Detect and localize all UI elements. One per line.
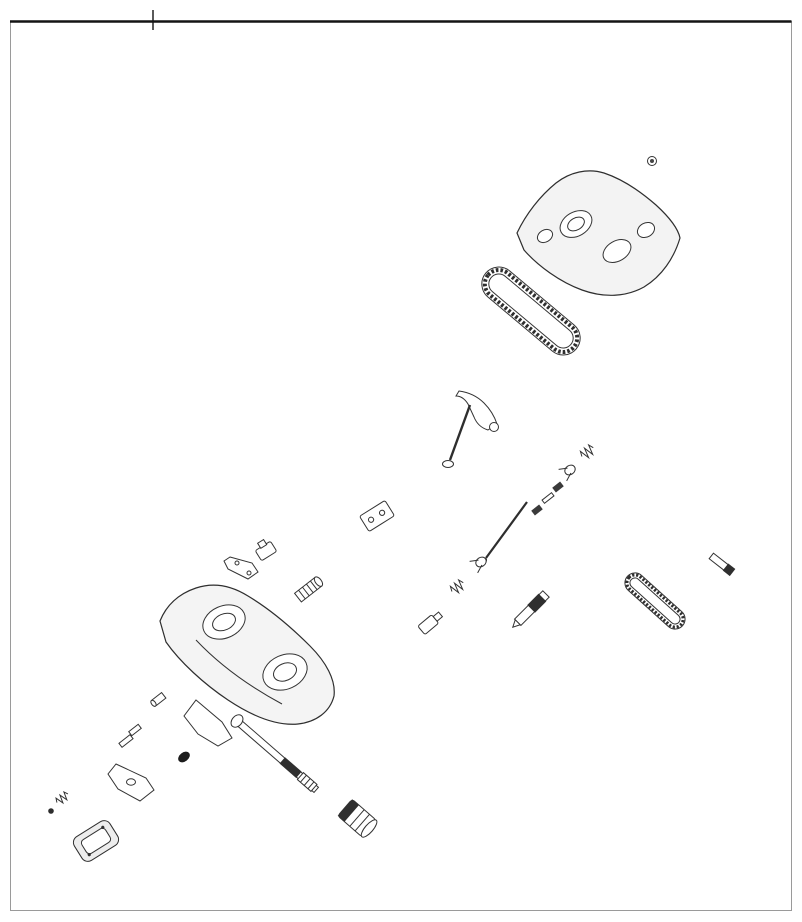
cap-art	[176, 749, 192, 764]
case-snout-art	[184, 700, 232, 746]
detent-ball-art	[48, 808, 54, 814]
coupler-art	[338, 799, 380, 839]
front-output-shaft-art	[709, 552, 736, 576]
collar-art	[531, 505, 543, 516]
spline-shaft-art	[295, 575, 325, 602]
sensor-art	[253, 537, 277, 561]
exploded-parts-diagram	[0, 0, 802, 922]
pinion-shaft-art	[509, 590, 550, 631]
detent-art	[119, 735, 133, 748]
pin-art	[542, 493, 554, 504]
cover-plate-art	[71, 818, 121, 864]
spring-art	[579, 444, 597, 461]
bracket44-art	[224, 557, 258, 579]
shift-fork-art	[559, 461, 579, 481]
nut-art	[648, 157, 657, 166]
shift-cover-art	[108, 764, 154, 801]
parts-diagram-page	[0, 0, 802, 922]
plug-45-art	[418, 610, 444, 634]
collar-art	[552, 482, 564, 493]
gearcase-cover-art	[517, 171, 680, 295]
shift-rail-art	[483, 502, 527, 562]
output-shaft-art	[229, 712, 321, 795]
bracket-art	[360, 500, 395, 531]
main-gearcase-art	[160, 585, 334, 746]
fitting-art	[150, 693, 166, 708]
detent-art	[129, 724, 142, 735]
bellcrank-art	[443, 391, 499, 468]
spring-art	[54, 791, 70, 806]
exploded-view-artwork	[48, 157, 735, 865]
spring-art	[449, 579, 467, 596]
front-drive-chain-art	[621, 569, 689, 633]
